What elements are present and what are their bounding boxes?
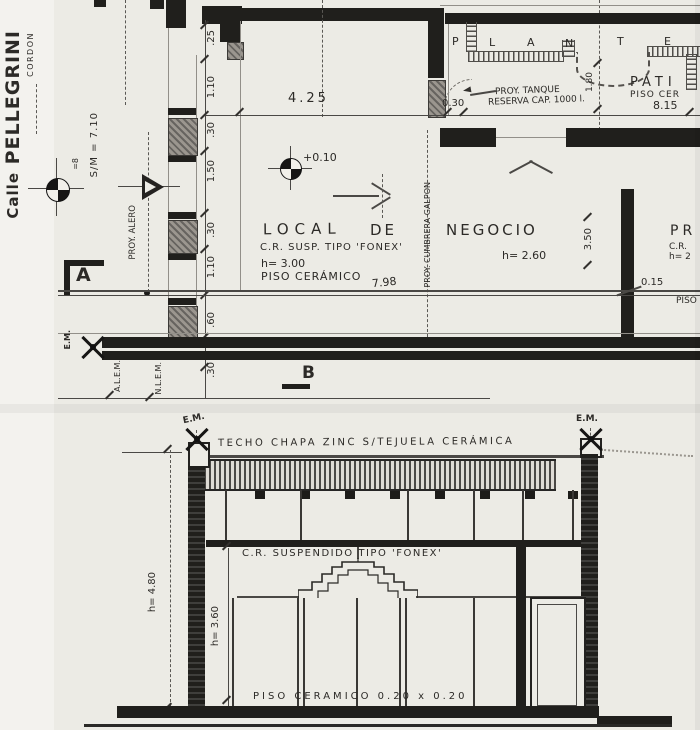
flow-arrow-shaft bbox=[333, 195, 379, 197]
dim-line-horizontal bbox=[205, 115, 700, 116]
room-name-part2: DE bbox=[370, 223, 397, 238]
planter-edge bbox=[466, 22, 477, 52]
mullion bbox=[356, 598, 358, 706]
dim-label-depth: 1.80 bbox=[586, 72, 595, 92]
planter-letter: A bbox=[527, 37, 535, 48]
cumbrera-projection-label: PROY. CUMBRERA GALPON bbox=[424, 182, 432, 288]
lintel-beam bbox=[206, 540, 581, 547]
hanger-line bbox=[225, 490, 227, 540]
dividing-wall bbox=[621, 189, 634, 342]
benchmark-symbol bbox=[46, 178, 70, 202]
wall-step bbox=[150, 0, 164, 9]
municipal-line-band bbox=[102, 337, 700, 348]
left-wall bbox=[188, 466, 205, 718]
dim-label: 1.10 bbox=[207, 76, 217, 98]
property-line bbox=[440, 5, 700, 6]
street-name-label: Calle PELLEGRINI bbox=[4, 30, 23, 219]
purlin bbox=[300, 491, 310, 499]
old-municipal-line-label: A.L.E.M. bbox=[114, 360, 122, 392]
pier-poche bbox=[168, 220, 198, 254]
alero-projection-line bbox=[148, 132, 149, 292]
total-height-label: h= 4.80 bbox=[148, 572, 158, 612]
planter-edge bbox=[468, 51, 564, 62]
jamb bbox=[168, 156, 196, 162]
edge-room-label: PR bbox=[670, 224, 696, 238]
patio-label: PATI bbox=[630, 76, 677, 89]
roof-note: TECHO CHAPA ZINC S/TEJUELA CERÁMICA bbox=[218, 437, 514, 449]
dim-label-width: 4.25 bbox=[288, 92, 329, 105]
dim-label: 1.10 bbox=[207, 256, 217, 278]
floor-note-plan: PISO CERÁMICO bbox=[261, 271, 361, 282]
mullion bbox=[232, 598, 234, 706]
room-name-part3: NEGOCIO bbox=[446, 223, 538, 238]
ceiling-note: C.R. SUSPENDIDO TIPO 'FONEX' bbox=[242, 549, 442, 559]
jamb bbox=[168, 254, 196, 260]
level-benchmark-symbol bbox=[280, 158, 302, 180]
dim-label-patio: 8.15 bbox=[653, 100, 678, 111]
jamb bbox=[168, 108, 196, 115]
em-cross-icon bbox=[80, 334, 106, 360]
dim-line-vertical bbox=[228, 548, 229, 706]
patio-wall bbox=[566, 128, 700, 147]
em-cross-icon bbox=[578, 426, 604, 452]
level-note: +0.10 bbox=[303, 152, 337, 163]
sidewalk-line bbox=[58, 333, 700, 334]
flow-arrow-head bbox=[371, 196, 391, 209]
ceiling-note-plan: C.R. SUSP. TIPO 'FONEX' bbox=[260, 243, 403, 253]
hanger-line bbox=[473, 490, 475, 540]
dim-line-horizontal bbox=[58, 398, 490, 399]
floor-slab bbox=[117, 706, 599, 718]
planter-letter: T bbox=[617, 36, 624, 47]
flow-arrow-head bbox=[371, 182, 391, 195]
room-name-part1: LOCAL bbox=[263, 222, 342, 238]
planter-letter: N bbox=[565, 38, 573, 49]
new-municipal-line-label: N.L.E.M. bbox=[155, 362, 163, 395]
dim-line-vertical bbox=[170, 450, 171, 712]
ground-dotted-line bbox=[601, 449, 693, 457]
purlin bbox=[435, 491, 445, 499]
planter-letter: E bbox=[664, 36, 671, 47]
party-wall bbox=[428, 8, 444, 78]
planter-letter: P bbox=[452, 36, 459, 47]
jamb bbox=[168, 212, 196, 219]
paper-edge-shadow bbox=[695, 0, 700, 730]
floor-note: PISO CERAMICO 0.20 x 0.20 bbox=[253, 692, 467, 702]
door-leaf bbox=[537, 604, 577, 706]
wall-poche bbox=[227, 42, 244, 60]
purlin bbox=[525, 491, 535, 499]
wall-inner-face bbox=[240, 21, 241, 291]
scanned-architectural-drawing: Calle PELLEGRINI CORDON =8 S/M = 7.10 A … bbox=[0, 0, 700, 730]
interior-height-label: h= 3.60 bbox=[211, 606, 221, 646]
wall-step bbox=[166, 0, 186, 28]
dim-tick bbox=[222, 695, 231, 704]
dim-tick bbox=[583, 260, 592, 269]
dim-label: .30 bbox=[207, 122, 217, 138]
hanger-line bbox=[407, 490, 409, 540]
purlin bbox=[390, 491, 400, 499]
jamb bbox=[168, 298, 196, 305]
section-marker-a: A bbox=[76, 266, 91, 285]
suspended-ceiling-line bbox=[237, 596, 299, 598]
dim-tick bbox=[583, 212, 592, 221]
opening-line bbox=[496, 137, 566, 138]
wall-face-line bbox=[168, 28, 169, 340]
reference-line bbox=[125, 0, 126, 105]
stepped-arch bbox=[298, 558, 418, 598]
hanger-line bbox=[572, 490, 574, 540]
mullion bbox=[297, 598, 299, 706]
leader-line bbox=[470, 90, 496, 96]
chevron-stroke bbox=[529, 160, 553, 174]
curb-line bbox=[36, 84, 37, 134]
hanger-line bbox=[300, 490, 302, 540]
purlin bbox=[480, 491, 490, 499]
em-label-section-right: E.M. bbox=[576, 415, 598, 424]
edge-note: PISO bbox=[676, 297, 697, 306]
purlin bbox=[345, 491, 355, 499]
dim-tick bbox=[593, 104, 602, 113]
scale-note: S/M = 7.10 bbox=[90, 112, 100, 177]
dim-label: .30 bbox=[207, 362, 217, 378]
edge-note: h= 2 bbox=[669, 253, 691, 262]
mullion bbox=[405, 598, 407, 706]
ground-line bbox=[84, 724, 672, 727]
em-label-section-left: E.M. bbox=[182, 413, 205, 426]
room-height-note: h= 3.00 bbox=[261, 258, 305, 269]
rear-wall bbox=[445, 13, 700, 24]
wall-fragment bbox=[94, 0, 106, 7]
em-label-plan: E.M. bbox=[64, 330, 72, 350]
purlin bbox=[255, 491, 265, 499]
benchmark-note: =8 bbox=[72, 158, 80, 170]
storefront-line bbox=[58, 290, 700, 292]
dim-label-wall: 0.30 bbox=[442, 99, 464, 109]
dim-label: .25 bbox=[207, 30, 217, 46]
municipal-line-band bbox=[102, 351, 700, 360]
wall-step bbox=[220, 24, 240, 42]
em-cross-icon bbox=[184, 426, 210, 452]
section-b-bracket bbox=[282, 384, 310, 389]
roof-top-line bbox=[204, 455, 604, 458]
dim-tick bbox=[145, 392, 154, 401]
hanger-line bbox=[522, 490, 524, 540]
tank-note-line2: RESERVA CAP. 1000 l. bbox=[488, 95, 585, 107]
alero-projection-label: PROY. ALERO bbox=[129, 205, 138, 260]
dim-label-thin-wall: 0.15 bbox=[641, 278, 663, 288]
patio-wall bbox=[440, 128, 496, 147]
street-name: PELLEGRINI bbox=[2, 30, 24, 164]
dim-label-bay: 3.50 bbox=[584, 228, 594, 250]
floor-level-value: 7.98 bbox=[371, 276, 397, 290]
reference-line bbox=[382, 174, 383, 218]
dim-label: .60 bbox=[207, 312, 217, 328]
pier-poche bbox=[168, 118, 198, 156]
curb-label: CORDON bbox=[27, 32, 35, 77]
direction-triangle-inner bbox=[145, 181, 156, 193]
mullion bbox=[473, 598, 475, 706]
dim-label: 1.50 bbox=[207, 160, 217, 182]
planter-letter: L bbox=[489, 37, 495, 48]
front-wall bbox=[240, 8, 430, 21]
storefront-line bbox=[58, 295, 700, 296]
edge-note: C.R. bbox=[669, 243, 687, 252]
mullion bbox=[303, 598, 305, 706]
wall-face-line bbox=[196, 55, 197, 340]
mullion bbox=[399, 598, 401, 706]
street-prefix: Calle bbox=[4, 172, 22, 219]
interior-column bbox=[516, 547, 526, 707]
section-marker-b: B bbox=[302, 365, 315, 382]
scan-fold bbox=[0, 404, 700, 413]
negocio-height-note: h= 2.60 bbox=[502, 250, 546, 261]
roof-tile-band bbox=[204, 459, 556, 491]
dim-label: .30 bbox=[207, 222, 217, 238]
dim-reference-line bbox=[122, 452, 182, 453]
